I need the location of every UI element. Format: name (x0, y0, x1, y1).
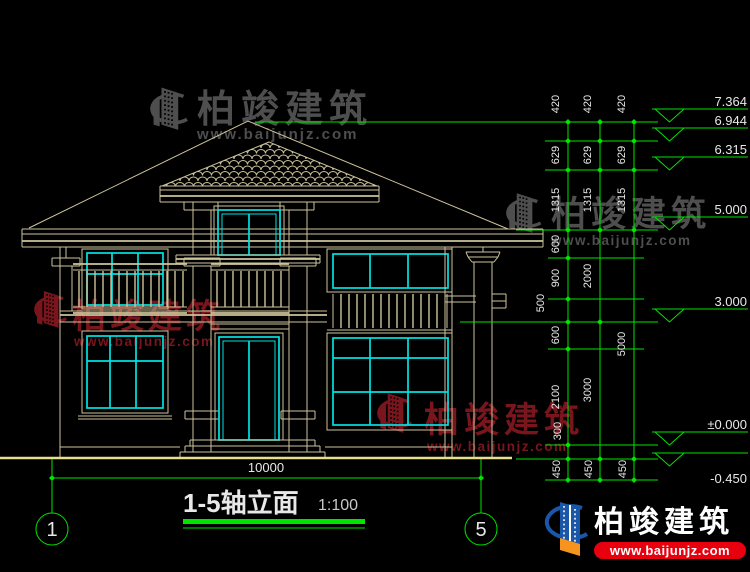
watermark-left: 柏竣建筑 www.baijunjz.com (36, 291, 224, 349)
dim-label: 1315 (550, 188, 562, 212)
dim-label: 2100 (550, 385, 562, 409)
watermark-logo-icon (379, 393, 412, 433)
dim-label: 5000 (616, 332, 628, 356)
watermark-top-center: 柏竣建筑 www.baijunjz.com (152, 88, 373, 143)
axis-number: 5 (475, 519, 486, 541)
right-slat-panel (327, 292, 452, 330)
elevation-value: 6.315 (714, 142, 747, 157)
elevation-drawing-canvas: 柏竣建筑 www.baijunjz.com 柏竣建筑 www.baijunjz.… (0, 0, 750, 572)
elevation-value: -0.450 (710, 471, 747, 486)
dim-label: 2000 (582, 264, 594, 288)
dim-label: 629 (582, 146, 594, 164)
elevation-value: 6.944 (714, 113, 747, 128)
elevation-marker: 6.315 (652, 142, 748, 170)
entrance-steps (180, 440, 325, 458)
dim-label: 900 (550, 269, 562, 287)
title-block: 1-5轴立面 1:100 (183, 488, 365, 528)
elevation-markers: 7.364 6.944 6.315 5.000 3.000 ±0.000 -0.… (652, 94, 748, 486)
dim-label: 450 (583, 460, 595, 478)
axis-bubble-1: 1 (36, 513, 68, 545)
entrance-pilasters (184, 258, 316, 452)
dim-label: 629 (616, 146, 628, 164)
scale-label: 1:100 (318, 497, 358, 514)
watermark-url-text: www.baijunjz.com (550, 233, 692, 248)
dim-label: 600 (550, 326, 562, 344)
logo-url-text: www.baijunjz.com (609, 543, 730, 558)
company-logo: 柏竣建筑 www.baijunjz.com (547, 502, 746, 559)
elevation-marker: -0.450 (652, 453, 748, 486)
watermark-logo-icon (508, 193, 541, 233)
watermark-logo-icon (152, 88, 187, 130)
dim-label: 3000 (582, 378, 594, 402)
dim-label: 300 (552, 422, 564, 440)
dim-label: 500 (535, 294, 547, 312)
dim-label: 600 (550, 235, 562, 253)
elevation-marker: 3.000 (652, 294, 748, 322)
logo-brand-text: 柏竣建筑 (594, 505, 734, 539)
cad-elevation-screenshot: 柏竣建筑 www.baijunjz.com 柏竣建筑 www.baijunjz.… (0, 0, 750, 572)
dimension-labels-col3: 420 629 1315 5000 450 (616, 95, 629, 478)
watermark-brand-text: 柏竣建筑 (197, 89, 373, 131)
balcony-slab (176, 255, 320, 263)
dim-label: 1315 (582, 188, 594, 212)
elevation-value: 3.000 (714, 294, 747, 309)
elevation-value: 5.000 (714, 202, 747, 217)
dim-label: 420 (582, 95, 594, 113)
right-upper-window (327, 249, 452, 292)
title-underline (183, 519, 365, 524)
elevation-marker: ±0.000 (652, 417, 748, 445)
elevation-value: 7.364 (714, 94, 747, 109)
dim-label: 629 (550, 146, 562, 164)
dim-label: 420 (550, 95, 562, 113)
elevation-value: ±0.000 (707, 417, 747, 432)
logo-building-icon (547, 502, 587, 556)
dim-label: 1315 (616, 188, 628, 212)
axis-bubble-5: 5 (465, 513, 497, 545)
entrance-door (215, 333, 283, 440)
page-title: 1-5轴立面 (183, 488, 299, 518)
dim-label: 420 (616, 95, 628, 113)
tower-roof (160, 142, 379, 202)
watermark-brand-text: 柏竣建筑 (551, 194, 711, 234)
elevation-marker: 6.944 (652, 113, 748, 141)
axis-number: 1 (46, 519, 57, 541)
overall-width-dim: 10000 (248, 460, 284, 475)
dim-label: 450 (551, 460, 563, 478)
dim-label: 450 (617, 460, 629, 478)
